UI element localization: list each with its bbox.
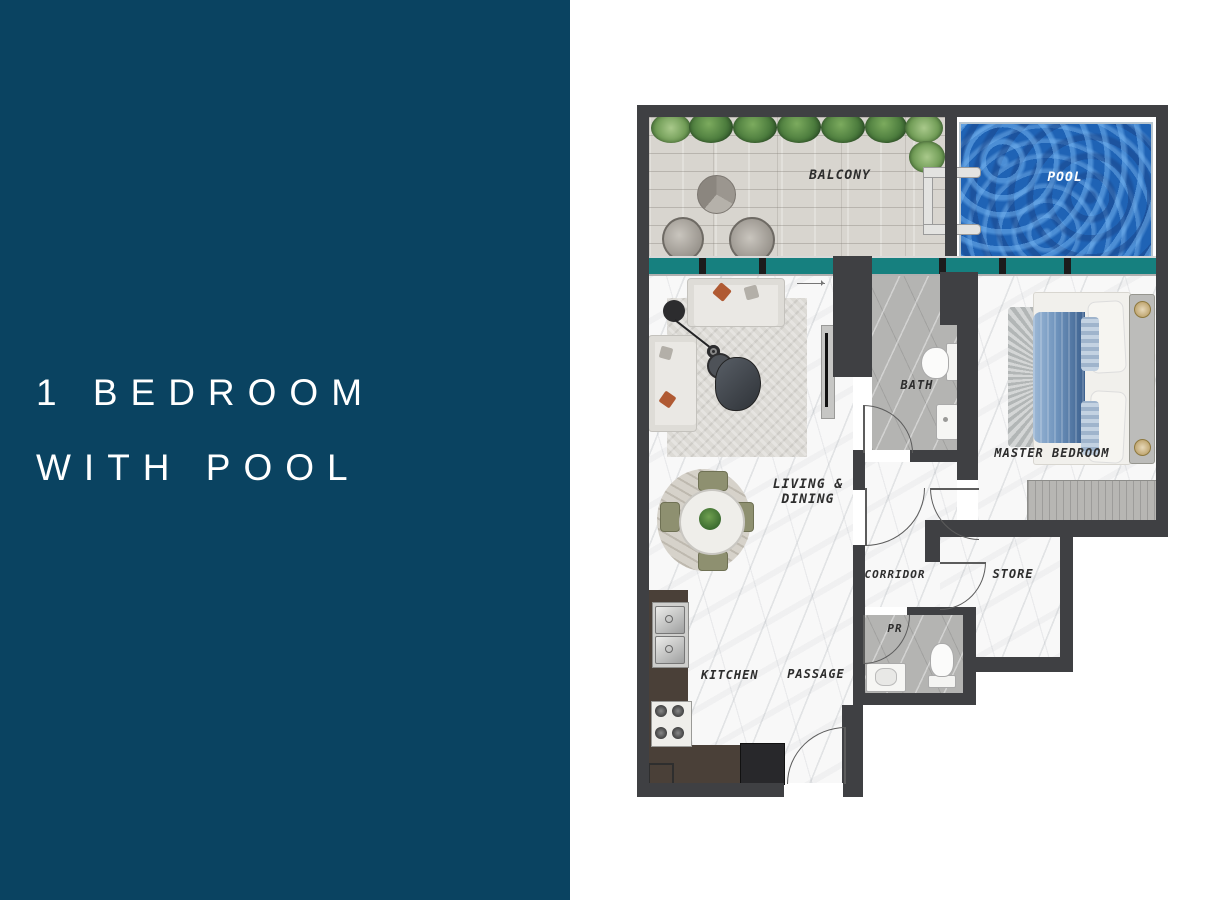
wall-pr-bottom <box>853 693 976 705</box>
wall-top <box>637 105 1168 117</box>
wall-store-bottom <box>963 657 1073 672</box>
label-pr: PR <box>884 623 906 636</box>
dining-plant-icon <box>699 508 721 530</box>
window-divider <box>1064 258 1071 274</box>
pool-water <box>959 122 1153 259</box>
dining-chair <box>698 471 728 491</box>
wall-left <box>637 105 649 797</box>
floor-lamp-shade <box>663 300 685 322</box>
dining-chair <box>660 502 680 532</box>
wall-bath-bottom-b <box>910 450 957 462</box>
label-corridor: CORRIDOR <box>863 569 927 582</box>
bath-sink-drain <box>943 417 948 422</box>
wall-corridor-left-a <box>853 450 865 490</box>
wall-bath-bedroom <box>957 272 978 480</box>
label-living-dining-line1: LIVING & <box>765 478 851 493</box>
label-living-dining-line2: DINING <box>765 493 851 508</box>
tv-screen <box>825 333 828 407</box>
wall-bottom-a <box>637 783 784 797</box>
page-title-line2: WITH POOL <box>36 447 361 489</box>
label-living-dining: LIVING & DINING <box>765 478 851 508</box>
pr-toilet-icon <box>930 643 954 677</box>
plant-icon <box>905 113 943 143</box>
label-passage: PASSAGE <box>785 668 847 682</box>
sink-drain <box>665 645 673 653</box>
window-divider <box>759 258 766 274</box>
plant-icon <box>651 113 691 143</box>
wall-store-right <box>1060 537 1073 672</box>
wall-bath-left <box>833 256 872 377</box>
wall-pr-top <box>907 607 963 615</box>
bath-sink-icon <box>936 404 959 440</box>
label-kitchen: KITCHEN <box>701 669 758 683</box>
wall-balcony-pool <box>945 117 957 258</box>
nightstand-lamp-icon <box>1134 439 1151 456</box>
label-bath: BATH <box>889 379 945 393</box>
balcony-chair <box>662 217 704 261</box>
kitchen-appliance <box>740 743 785 785</box>
label-master-bedroom: MASTER BEDROOM <box>992 447 1112 461</box>
stove-burner <box>672 705 684 717</box>
label-balcony: BALCONY <box>787 169 893 184</box>
stove-burner <box>655 705 667 717</box>
balcony-table <box>697 175 736 214</box>
label-pool: POOL <box>1035 171 1095 186</box>
sofa-top <box>687 278 785 327</box>
stove-burner <box>672 727 684 739</box>
stove-burner <box>655 727 667 739</box>
pr-sink-basin <box>875 668 897 686</box>
left-panel: 1 BEDROOM WITH POOL <box>0 0 570 900</box>
floorplan: BALCONY POOL LIVING & DINING BATH MASTER… <box>637 105 1168 797</box>
wall-bottom-b <box>843 783 863 797</box>
bed-duvet <box>1033 312 1085 443</box>
wall-pr-right <box>963 607 976 705</box>
page-title-line1: 1 BEDROOM <box>36 372 375 414</box>
window-divider <box>699 258 706 274</box>
label-store: STORE <box>981 568 1045 582</box>
sliding-door-arrow-icon <box>797 283 825 284</box>
window-divider <box>999 258 1006 274</box>
wall-store-left <box>925 537 940 562</box>
nightstand-lamp-icon <box>1134 301 1151 318</box>
wardrobe <box>1027 480 1158 522</box>
bath-toilet-icon <box>921 347 949 379</box>
window-strip <box>649 256 1156 276</box>
wall-right <box>1156 105 1168 537</box>
bed-accent-pillow <box>1081 317 1099 371</box>
sink-drain <box>665 615 673 623</box>
